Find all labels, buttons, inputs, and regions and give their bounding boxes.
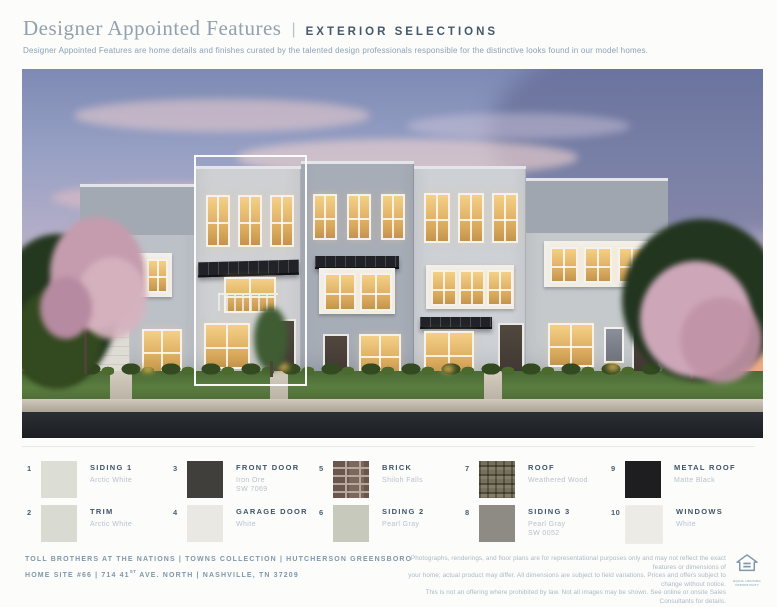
home-site-highlight-outline	[194, 155, 307, 386]
cloud	[407, 113, 629, 139]
selection-siding-3: 8 SIDING 3 Pearl GraySW 0052	[465, 505, 611, 542]
selection-number: 1	[27, 461, 41, 498]
selection-siding-2: 6 SIDING 2 Pearl Gray	[319, 505, 465, 542]
selection-number: 3	[173, 461, 187, 498]
legal-disclaimer: Photographs, renderings, and floor plans…	[397, 554, 726, 607]
section-title: EXTERIOR SELECTIONS	[306, 26, 498, 38]
foundation-shrubs	[74, 358, 674, 378]
selection-name: SIDING 2	[382, 507, 425, 516]
roof-swatch	[479, 461, 515, 498]
selection-name: TRIM	[90, 507, 132, 516]
address-line: HOME SITE #66 | 714 41ST AVE. NORTH | NA…	[25, 566, 397, 582]
sidewalk	[22, 399, 763, 412]
equal-housing-label: EQUAL HOUSING OPPORTUNITY	[732, 580, 762, 587]
trim-swatch	[41, 505, 77, 542]
selection-number: 9	[611, 461, 625, 498]
selection-number: 10	[611, 505, 625, 542]
selection-name: GARAGE DOOR	[236, 507, 308, 516]
selection-number: 5	[319, 461, 333, 498]
street	[22, 412, 763, 438]
windows-swatch	[625, 505, 663, 544]
townhome-unit-4	[414, 166, 526, 381]
community-line: TOLL BROTHERS AT THE NATIONS | TOWNS COL…	[25, 554, 397, 566]
siding-2-swatch	[333, 505, 369, 542]
equal-housing-logo: EQUAL HOUSING OPPORTUNITY	[732, 554, 762, 607]
selection-number: 6	[319, 505, 333, 542]
selection-windows: 10 WINDOWS White	[611, 505, 757, 542]
footer: TOLL BROTHERS AT THE NATIONS | TOWNS COL…	[25, 554, 762, 607]
selection-name: FRONT DOOR	[236, 463, 299, 472]
equal-housing-house-icon	[736, 554, 758, 574]
selection-name: SIDING 1	[90, 463, 133, 472]
selection-name: METAL ROOF	[674, 463, 736, 472]
selection-name: SIDING 3	[528, 507, 571, 516]
header: Designer Appointed Features | EXTERIOR S…	[23, 16, 757, 55]
selection-siding-1: 1 SIDING 1 Arctic White	[27, 461, 173, 498]
brick-swatch	[333, 461, 369, 498]
selection-metal-roof: 9 METAL ROOF Matte Black	[611, 461, 757, 498]
front-door-swatch	[187, 461, 223, 498]
siding-1-swatch	[41, 461, 77, 498]
divider-line	[22, 446, 755, 447]
designer-features-sheet: Designer Appointed Features | EXTERIOR S…	[0, 0, 777, 600]
selection-number: 4	[173, 505, 187, 542]
townhome-unit-3	[301, 161, 414, 381]
exterior-selections-grid: 1 SIDING 1 Arctic White 2 TRIM Arctic Wh…	[27, 461, 757, 549]
selection-brick: 5 BRICK Shiloh Falls	[319, 461, 465, 498]
siding-3-swatch	[479, 505, 515, 542]
selection-name: ROOF	[528, 463, 588, 472]
exterior-rendering	[22, 69, 763, 438]
page-title: Designer Appointed Features	[23, 16, 281, 41]
selection-front-door: 3 FRONT DOOR Iron OreSW 7069	[173, 461, 319, 498]
selection-number: 2	[27, 505, 41, 542]
selection-roof: 7 ROOF Weathered Wood	[465, 461, 611, 498]
blossom-tree	[40, 277, 92, 339]
title-separator: |	[291, 21, 295, 39]
cloud	[74, 99, 370, 132]
garage-door-swatch	[187, 505, 223, 542]
selection-garage-door: 4 GARAGE DOOR White	[173, 505, 319, 542]
selection-name: WINDOWS	[676, 507, 723, 516]
header-description: Designer Appointed Features are home det…	[23, 46, 757, 55]
selection-trim: 2 TRIM Arctic White	[27, 505, 173, 542]
metal-awning	[420, 317, 492, 329]
selection-name: BRICK	[382, 463, 423, 472]
metal-roof-swatch	[625, 461, 661, 498]
selection-number: 8	[465, 505, 479, 542]
blossom-tree	[680, 297, 762, 383]
selection-number: 7	[465, 461, 479, 498]
